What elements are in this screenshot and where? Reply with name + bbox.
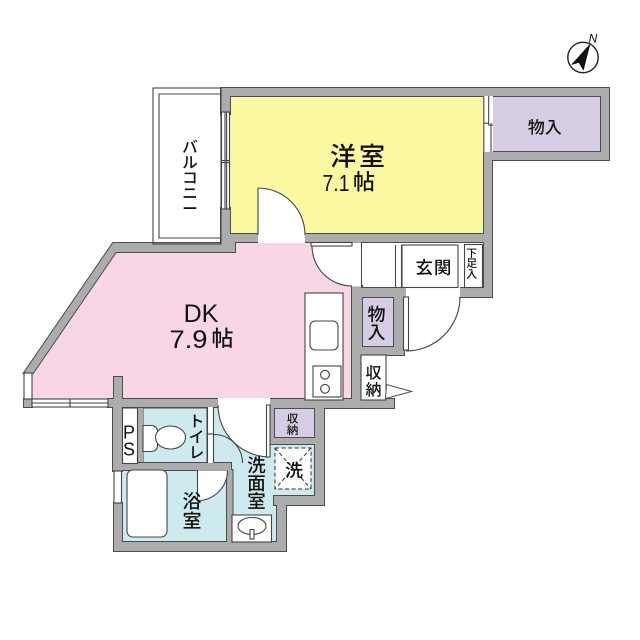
svg-text:7.9: 7.9	[170, 326, 208, 354]
svg-text:7.1: 7.1	[323, 170, 350, 196]
svg-text:DK: DK	[184, 300, 219, 328]
svg-text:N: N	[589, 32, 598, 46]
svg-text:S: S	[123, 440, 135, 460]
